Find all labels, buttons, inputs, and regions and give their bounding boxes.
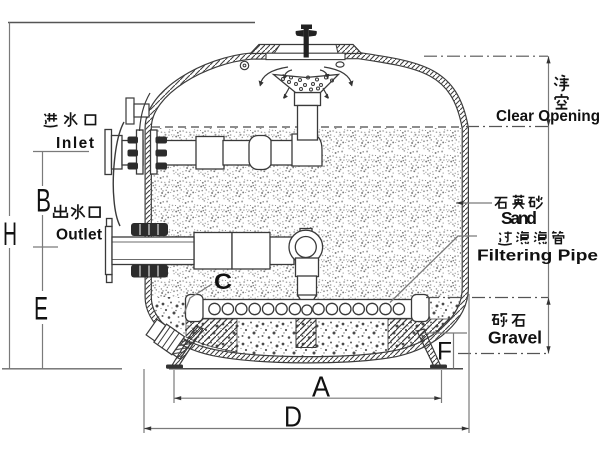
svg-text:Clear Opening: Clear Opening [496, 108, 600, 125]
svg-text:D: D [284, 402, 302, 434]
svg-text:Outlet: Outlet [56, 227, 102, 244]
svg-text:A: A [312, 372, 331, 404]
svg-text:C: C [214, 269, 232, 294]
svg-text:E: E [34, 291, 48, 327]
svg-text:Sand: Sand [501, 208, 537, 228]
svg-text:B: B [36, 183, 51, 219]
svg-text:Gravel: Gravel [488, 328, 542, 348]
svg-text:Filtering Pipe: Filtering Pipe [477, 248, 598, 265]
svg-text:F: F [437, 338, 452, 366]
svg-text:H: H [3, 216, 17, 252]
svg-text:Inlet: Inlet [56, 135, 94, 152]
